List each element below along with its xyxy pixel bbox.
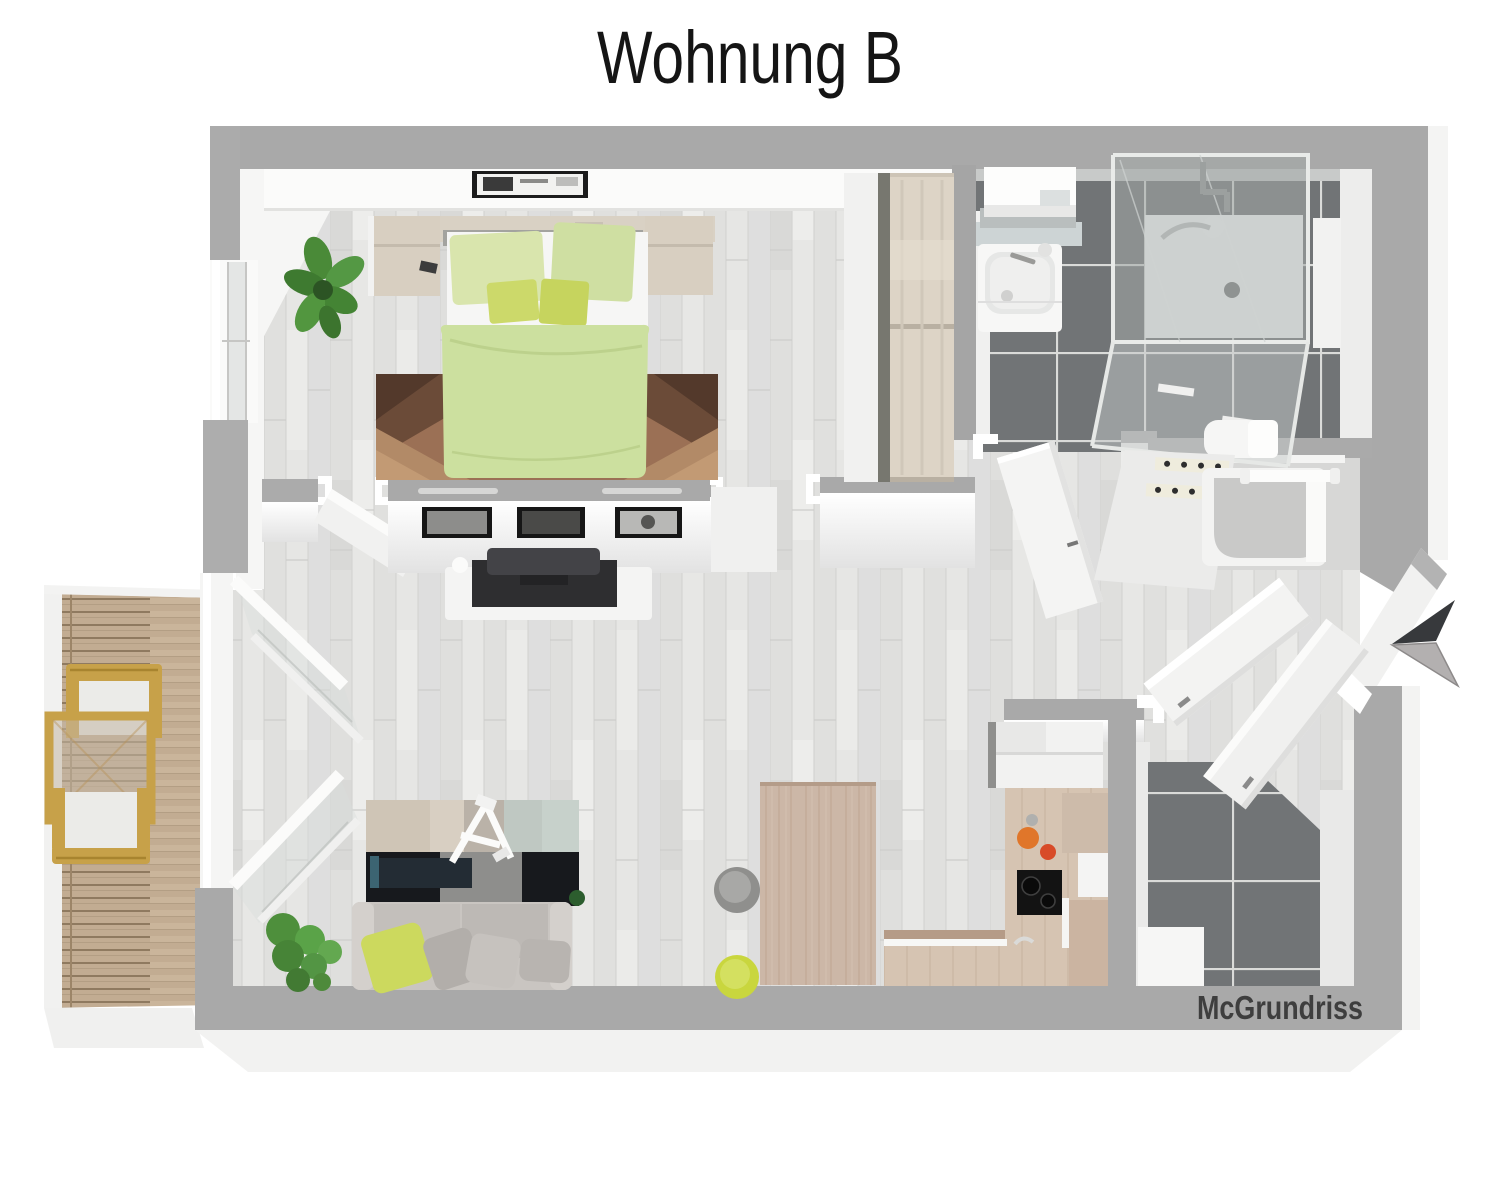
svg-text:Wohnung B: Wohnung B [597, 16, 903, 99]
svg-text:McGrundriss: McGrundriss [1197, 989, 1363, 1026]
